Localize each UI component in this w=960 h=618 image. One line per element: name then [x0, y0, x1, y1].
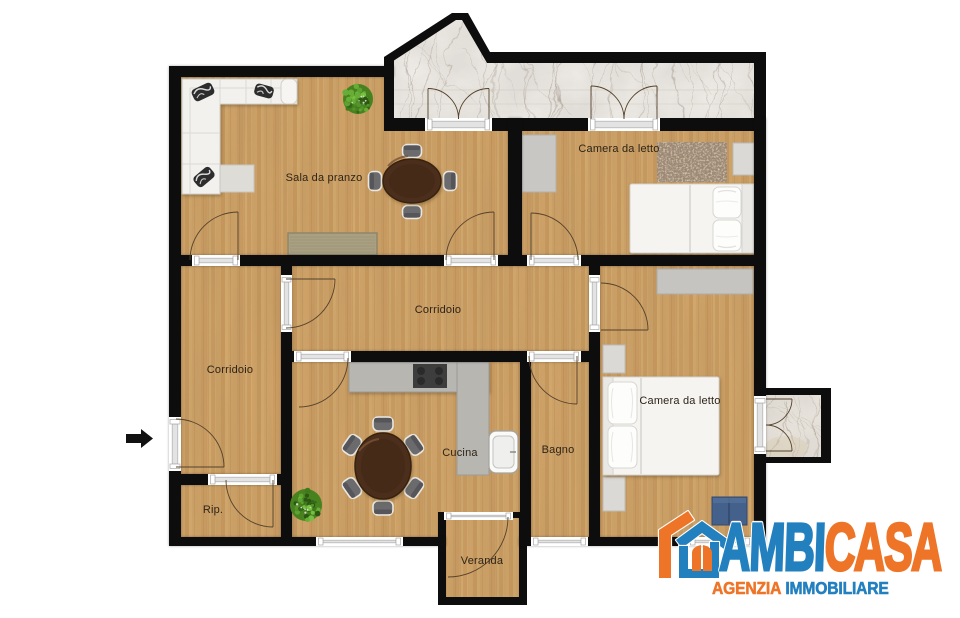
svg-text:Sala da pranzo: Sala da pranzo [286, 172, 363, 184]
svg-text:Corridoio: Corridoio [207, 364, 253, 376]
svg-text:AGENZIA IMMOBILIARE: AGENZIA IMMOBILIARE [712, 578, 889, 598]
svg-text:Veranda: Veranda [461, 555, 504, 567]
svg-text:Camera da letto: Camera da letto [639, 395, 720, 407]
svg-text:Bagno: Bagno [542, 444, 575, 456]
svg-text:AMBICASA: AMBICASA [719, 509, 944, 584]
svg-text:Camera da letto: Camera da letto [578, 143, 659, 155]
svg-text:Cucina: Cucina [442, 447, 478, 459]
svg-text:Rip.: Rip. [203, 504, 223, 516]
svg-text:Corridoio: Corridoio [415, 304, 461, 316]
